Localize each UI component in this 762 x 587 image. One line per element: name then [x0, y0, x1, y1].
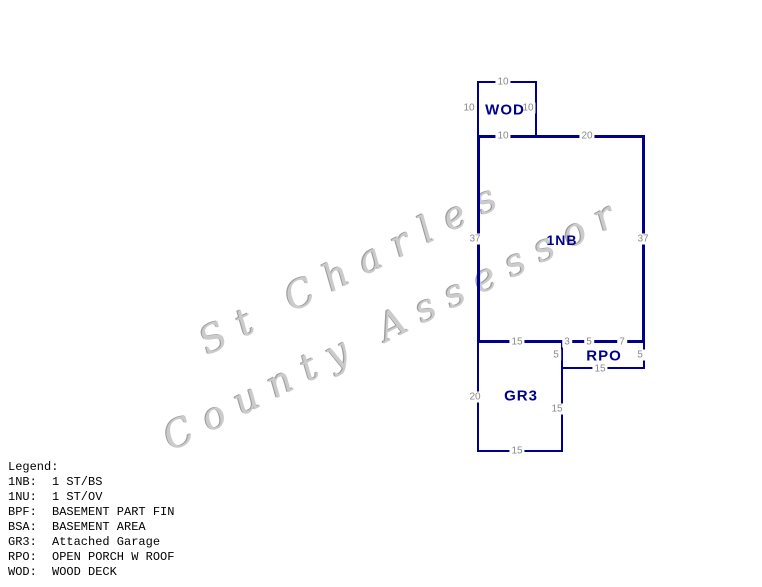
legend-row: WOD:WOOD DECK [8, 565, 174, 580]
dimension-label: 10 [495, 131, 510, 142]
dimension-label: 10 [461, 103, 476, 114]
legend-value: 1 ST/BS [52, 475, 102, 489]
legend-row: GR3:Attached Garage [8, 535, 174, 550]
legend-key: BPF: [8, 505, 52, 520]
legend-key: BSA: [8, 520, 52, 535]
dimension-label: 37 [635, 234, 650, 245]
dimension-label: 15 [509, 446, 524, 457]
legend-value: BASEMENT PART FIN [52, 505, 174, 519]
dimension-label: 7 [617, 337, 627, 348]
legend: Legend: 1NB:1 ST/BS 1NU:1 ST/OV BPF:BASE… [8, 460, 174, 580]
dimension-label: 20 [579, 131, 594, 142]
dimension-label: 20 [467, 392, 482, 403]
area-label-rpo: RPO [586, 348, 622, 365]
legend-value: Attached Garage [52, 535, 160, 549]
legend-value: OPEN PORCH W ROOF [52, 550, 174, 564]
dimension-label: 10 [495, 77, 510, 88]
legend-value: 1 ST/OV [52, 490, 102, 504]
legend-row: BPF:BASEMENT PART FIN [8, 505, 174, 520]
legend-key: WOD: [8, 565, 52, 580]
legend-row: 1NB:1 ST/BS [8, 475, 174, 490]
dimension-label: 5 [584, 337, 594, 348]
area-label-wod: WOD [485, 102, 525, 119]
legend-row: 1NU:1 ST/OV [8, 490, 174, 505]
legend-row: RPO:OPEN PORCH W ROOF [8, 550, 174, 565]
dimension-label: 15 [549, 404, 564, 415]
dimension-label: 5 [551, 350, 561, 361]
legend-key: RPO: [8, 550, 52, 565]
assessor-sketch-canvas: St Charles County Assessor 10 10 10 10 2… [0, 0, 762, 587]
legend-key: 1NB: [8, 475, 52, 490]
dimension-label: 15 [592, 364, 607, 375]
dimension-label: 5 [635, 350, 645, 361]
dimension-label: 3 [562, 337, 572, 348]
legend-key: 1NU: [8, 490, 52, 505]
area-label-gr3: GR3 [504, 388, 538, 405]
legend-title: Legend: [8, 460, 174, 475]
legend-row: BSA:BASEMENT AREA [8, 520, 174, 535]
area-label-1nb: 1NB [546, 232, 577, 248]
legend-value: WOOD DECK [52, 565, 117, 579]
legend-key: GR3: [8, 535, 52, 550]
dimension-label: 37 [467, 234, 482, 245]
legend-value: BASEMENT AREA [52, 520, 146, 534]
dimension-label: 15 [509, 337, 524, 348]
